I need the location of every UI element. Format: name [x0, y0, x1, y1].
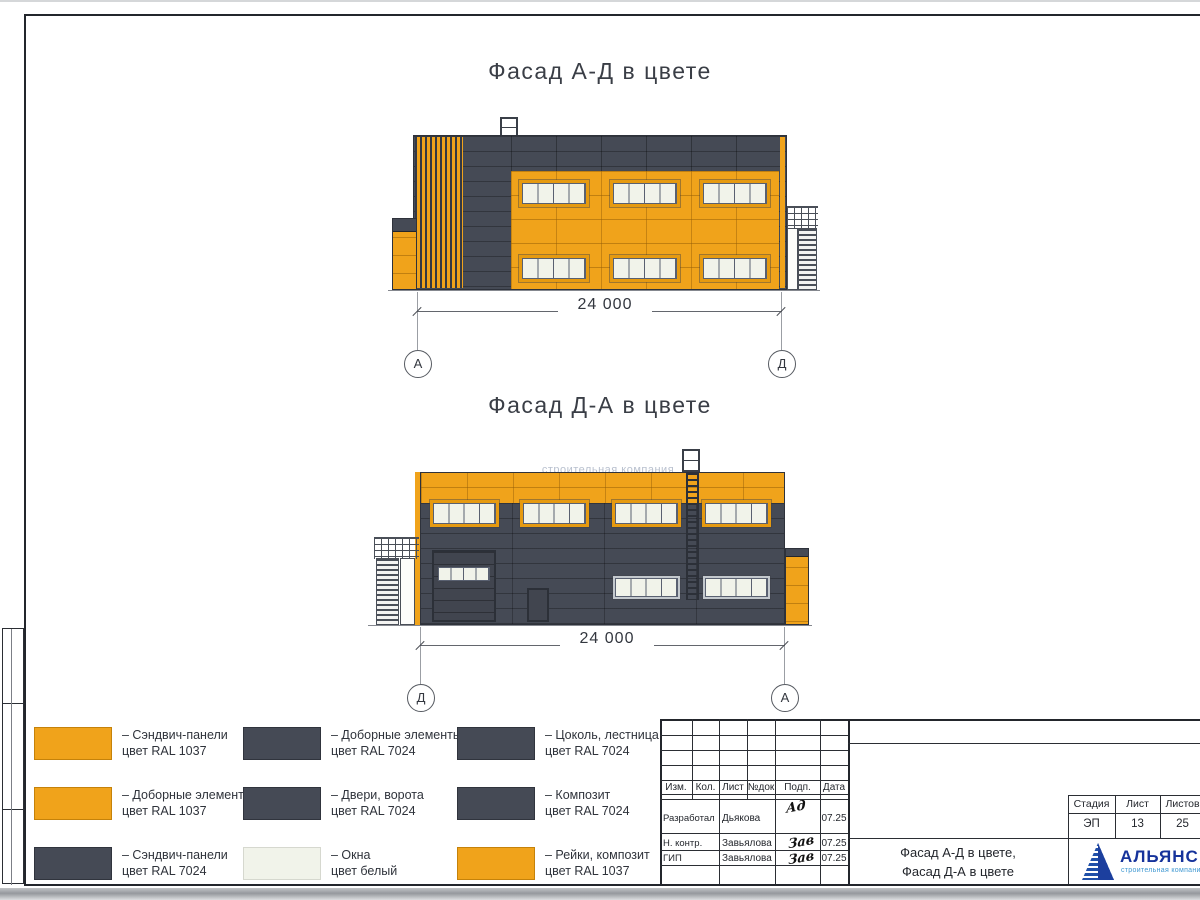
side-column-line: [3, 809, 25, 810]
legend-line: – Композит: [545, 788, 630, 804]
stage-value: 25: [1160, 818, 1200, 830]
legend-swatch-white: [243, 847, 321, 880]
axis-bubble: А: [771, 684, 799, 712]
legend-line: – Сэндвич-панели: [122, 848, 228, 864]
stair-treads: [376, 558, 399, 625]
left-annex: [392, 218, 417, 290]
stage-header: Лист: [1115, 798, 1160, 810]
legend-line: – Двери, ворота: [331, 788, 424, 804]
sectional-gate: [432, 550, 496, 622]
legend-line: – Окна: [331, 848, 397, 864]
stage-header: Листов: [1160, 798, 1200, 810]
legend-label: – Сэндвич-панели цвет RAL 7024: [122, 848, 228, 879]
facade-ad-drawing: [388, 117, 820, 363]
legend-label: – Сэндвич-панели цвет RAL 1037: [122, 728, 228, 759]
legend-line: – Цоколь, лестница: [545, 728, 659, 744]
stamp-date: 07.25: [820, 813, 848, 824]
signature: Ад: [786, 798, 805, 817]
legend-item: – Двери, ворота цвет RAL 7024: [243, 787, 424, 820]
stair-railing: [374, 537, 419, 559]
stamp-line: [660, 719, 1200, 721]
stamp-line: [848, 743, 1200, 744]
stamp-line: [775, 719, 776, 884]
window-group: [523, 503, 586, 524]
axis-leader: [784, 646, 785, 684]
legend-line: – Доборные элементы: [122, 788, 253, 804]
legend-swatch-orange: [457, 847, 535, 880]
legend-swatch-dark: [243, 787, 321, 820]
legend-label: – Окна цвет белый: [331, 848, 397, 879]
stamp-header-cell: Кол.: [692, 782, 719, 793]
stamp-header-cell: Лист: [719, 782, 747, 793]
legend-line: – Доборные элементы: [331, 728, 462, 744]
legend-line: цвет RAL 7024: [545, 744, 659, 760]
legend-item: – Окна цвет белый: [243, 847, 397, 880]
legend-label: – Двери, ворота цвет RAL 7024: [331, 788, 424, 819]
doc-title-line2: Фасад Д-А в цвете: [850, 864, 1066, 879]
frame-left: [24, 14, 26, 886]
legend-line: – Сэндвич-панели: [122, 728, 228, 744]
legend-swatch-dark: [457, 787, 535, 820]
axis-leader: [420, 646, 421, 684]
legend-label: – Цоколь, лестница цвет RAL 7024: [545, 728, 659, 759]
right-annex: [785, 548, 809, 625]
roof-hatch: [682, 449, 700, 472]
axis-leader: [417, 312, 418, 350]
stamp-date: 07.25: [820, 853, 848, 864]
legend-line: цвет RAL 7024: [331, 744, 462, 760]
window-group: [705, 503, 768, 524]
side-column: [2, 628, 24, 884]
stamp-line: [1068, 813, 1200, 814]
window-group: [615, 503, 678, 524]
window-group: [522, 183, 586, 204]
legend-item: – Сэндвич-панели цвет RAL 7024: [34, 847, 228, 880]
window-group: [613, 258, 677, 279]
company-logo-text: АЛЬЯНС: [1120, 847, 1199, 867]
doc-title-line1: Фасад А-Д в цвете,: [850, 845, 1066, 860]
slat-screen: [415, 137, 463, 288]
window-group: [703, 258, 767, 279]
ground-line: [388, 290, 820, 291]
legend-swatch-orange: [34, 727, 112, 760]
window-group: [522, 258, 586, 279]
legend-swatch-orange: [34, 787, 112, 820]
stamp-header-cell: Дата: [820, 782, 848, 793]
legend-swatch-dark: [243, 727, 321, 760]
legend-label: – Рейки, композит цвет RAL 1037: [545, 848, 650, 879]
side-column-divider: [11, 629, 12, 885]
axis-bubble: Д: [768, 350, 796, 378]
facade-ad-title: Фасад А-Д в цвете: [400, 58, 800, 85]
stamp-date: 07.25: [820, 838, 848, 849]
annex-cap: [786, 549, 808, 557]
stamp-header-cell: №док: [747, 782, 775, 793]
stamp-line: [719, 719, 720, 884]
legend-line: цвет RAL 7024: [545, 804, 630, 820]
legend-line: цвет RAL 1037: [122, 744, 228, 760]
dimension-value: 24 000: [560, 630, 654, 648]
legend-line: цвет белый: [331, 864, 397, 880]
stamp-role: Н. контр.: [663, 838, 702, 849]
axis-bubble: Д: [407, 684, 435, 712]
stamp-role: ГИП: [663, 853, 682, 864]
stair-panel: [787, 228, 798, 290]
stamp-header-cell: Изм.: [660, 782, 692, 793]
stair-railing: [787, 206, 818, 229]
legend-label: – Доборные элементы цвет RAL 7024: [331, 728, 462, 759]
side-column-line: [3, 703, 25, 704]
legend-item: – Сэндвич-панели цвет RAL 1037: [34, 727, 228, 760]
stamp-line: [1068, 795, 1200, 796]
legend-label: – Доборные элементы цвет RAL 1037: [122, 788, 253, 819]
ground-line: [368, 625, 812, 626]
facade-da-drawing: строительная компания: [368, 449, 812, 697]
stage-value: ЭП: [1068, 818, 1115, 830]
stage-header: Стадия: [1068, 798, 1115, 810]
window-group: [705, 578, 768, 597]
annex-cap: [393, 219, 416, 232]
window-group: [615, 578, 678, 597]
legend-item: – Доборные элементы цвет RAL 1037: [34, 787, 253, 820]
stamp-name: Дьякова: [722, 813, 760, 824]
legend-item: – Рейки, композит цвет RAL 1037: [457, 847, 650, 880]
frame-bottom: [24, 884, 1200, 886]
frame-top: [24, 14, 1200, 16]
stamp-line: [660, 719, 662, 884]
roof-hatch-divider: [684, 460, 698, 461]
legend-line: цвет RAL 1037: [545, 864, 650, 880]
legend-item: – Композит цвет RAL 7024: [457, 787, 630, 820]
drawing-sheet: Фасад А-Д в цвете Фасад Д-А в цвете: [0, 0, 1200, 900]
stamp-line: [848, 838, 1200, 839]
page-top-edge: [0, 0, 1200, 2]
stamp-name: Завьялова: [722, 838, 772, 849]
legend-line: цвет RAL 1037: [122, 804, 253, 820]
legend-item: – Доборные элементы цвет RAL 7024: [243, 727, 462, 760]
gate-window-band: [438, 567, 490, 581]
company-logo-subtext: строительная компания: [1121, 867, 1200, 874]
corner-trim: [780, 137, 785, 288]
legend-swatch-dark: [457, 727, 535, 760]
stage-value: 13: [1115, 818, 1160, 830]
roof-hatch: [500, 117, 518, 137]
facade-da-body: [420, 472, 785, 625]
legend-swatch-dark: [34, 847, 112, 880]
stamp-role: Разработал: [663, 813, 715, 824]
window-group: [703, 183, 767, 204]
roof-ladder: [686, 473, 699, 600]
orange-top-band: [421, 473, 784, 503]
window-group: [433, 503, 496, 524]
legend-line: – Рейки, композит: [545, 848, 650, 864]
facade-ad-body: [413, 135, 787, 290]
facade-da-title: Фасад Д-А в цвете: [400, 392, 800, 419]
entrance-door: [527, 588, 549, 622]
stair-treads: [798, 228, 817, 290]
legend-item: – Цоколь, лестница цвет RAL 7024: [457, 727, 659, 760]
stamp-header-cell: Подп.: [775, 782, 820, 793]
window-group: [613, 183, 677, 204]
axis-bubble: А: [404, 350, 432, 378]
page-bottom-shadow: [0, 888, 1200, 900]
roof-hatch-divider: [502, 127, 516, 128]
band-joints: [511, 136, 779, 171]
stamp-name: Завьялова: [722, 853, 772, 864]
stair-panel: [400, 558, 415, 625]
dimension-value: 24 000: [558, 296, 652, 314]
legend-label: – Композит цвет RAL 7024: [545, 788, 630, 819]
legend-line: цвет RAL 7024: [122, 864, 228, 880]
axis-leader: [781, 312, 782, 350]
legend-line: цвет RAL 7024: [331, 804, 424, 820]
